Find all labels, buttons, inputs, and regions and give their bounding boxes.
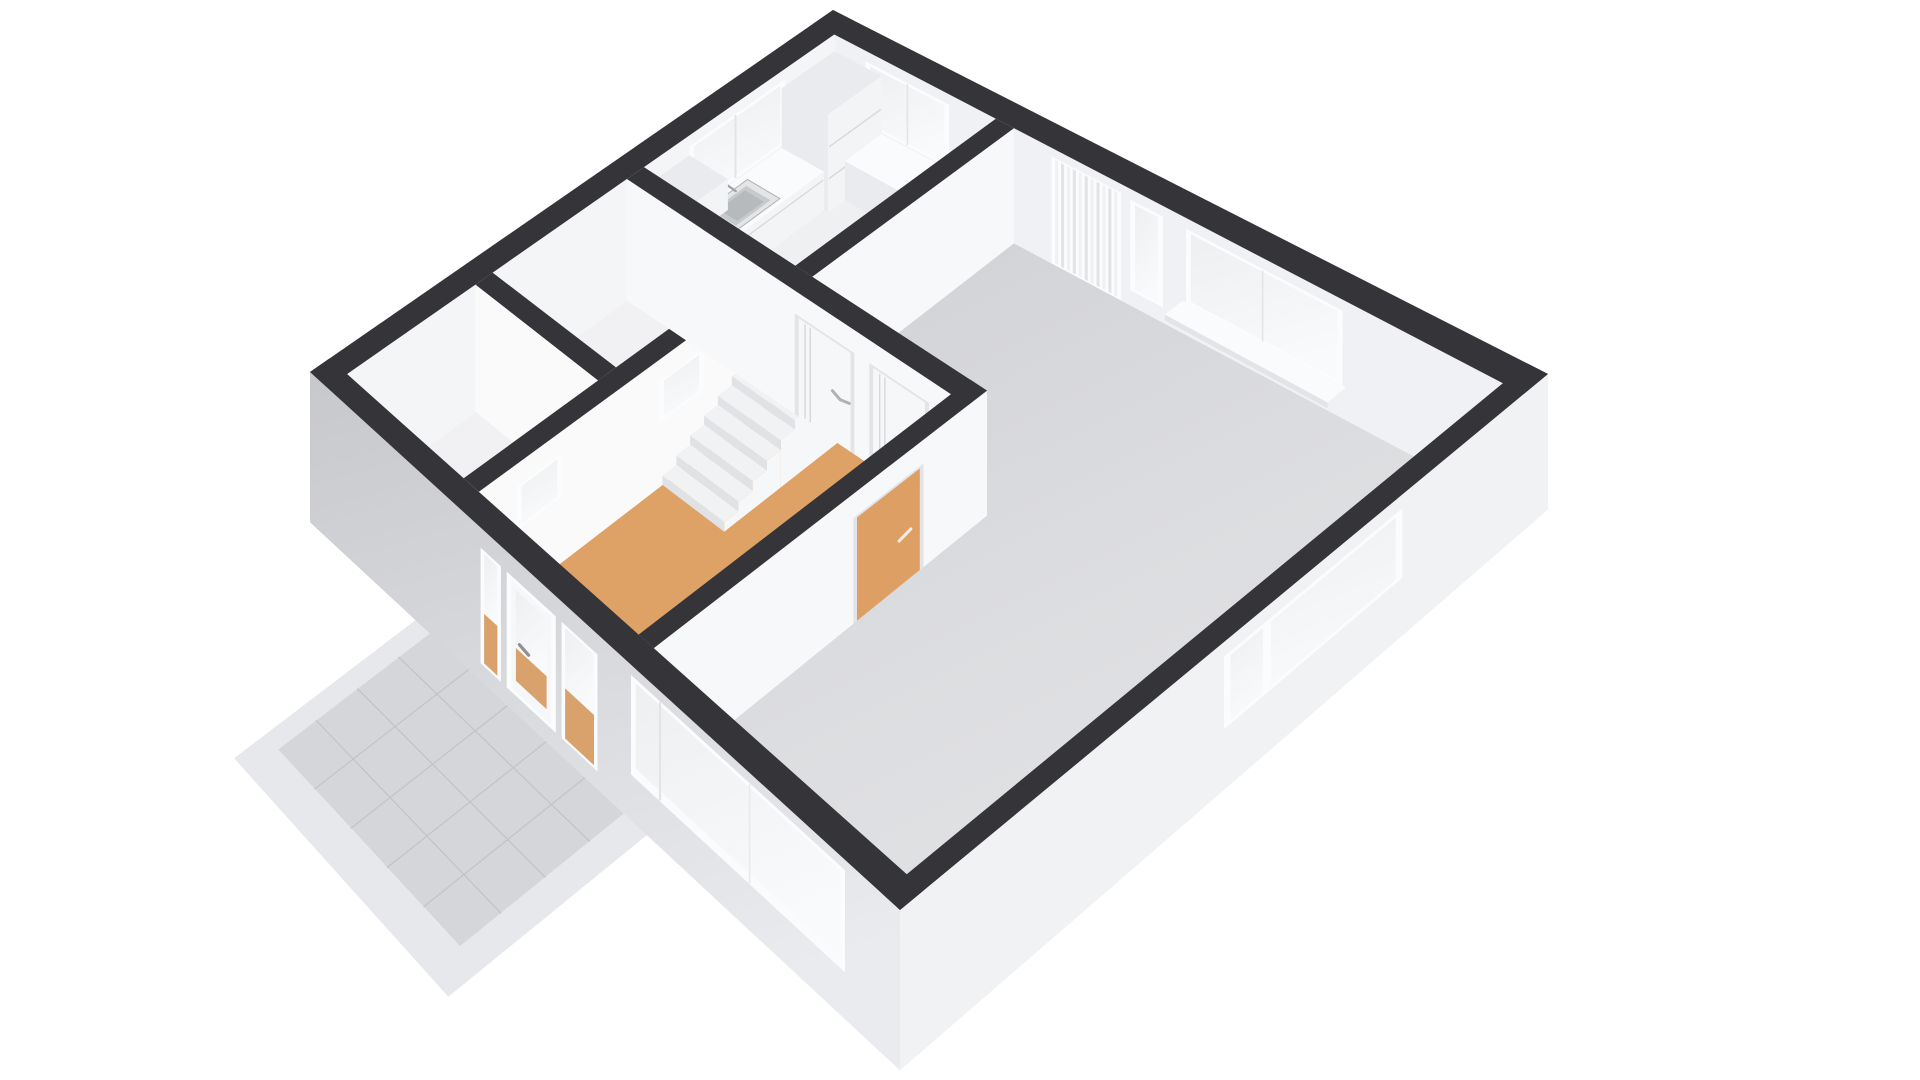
floor-plan-canvas [0, 0, 1920, 1080]
ne-window-narrow [1130, 200, 1163, 308]
floor-plan-3d-render [0, 0, 1920, 1080]
scene [234, 10, 1548, 1070]
door-sidelight-left [481, 548, 501, 682]
